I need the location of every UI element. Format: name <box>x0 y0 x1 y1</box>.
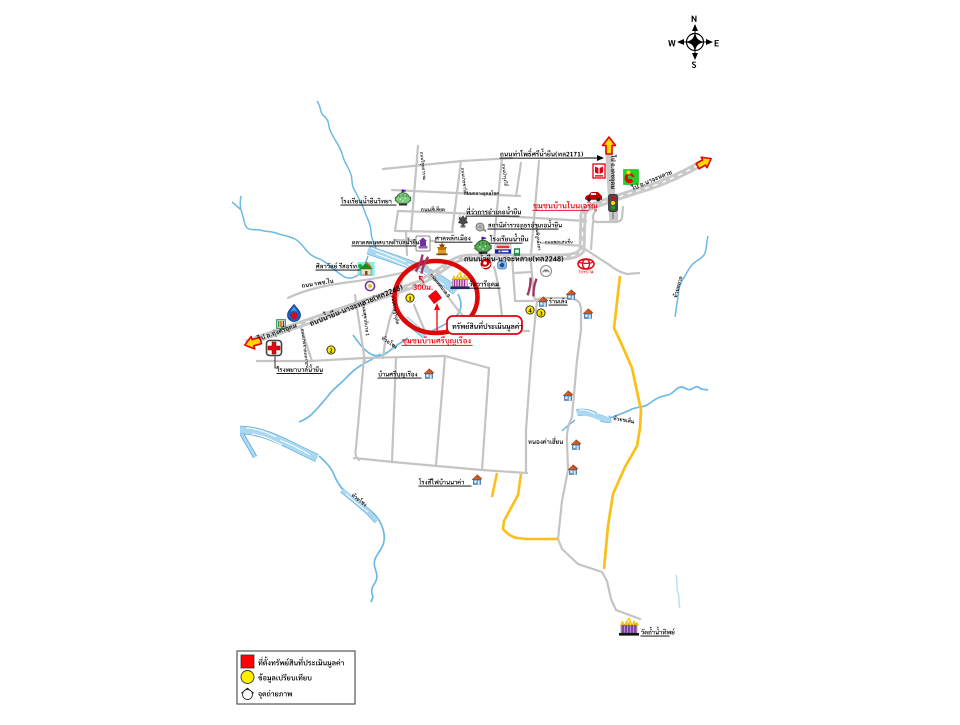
svg-text:1: 1 <box>408 296 411 303</box>
